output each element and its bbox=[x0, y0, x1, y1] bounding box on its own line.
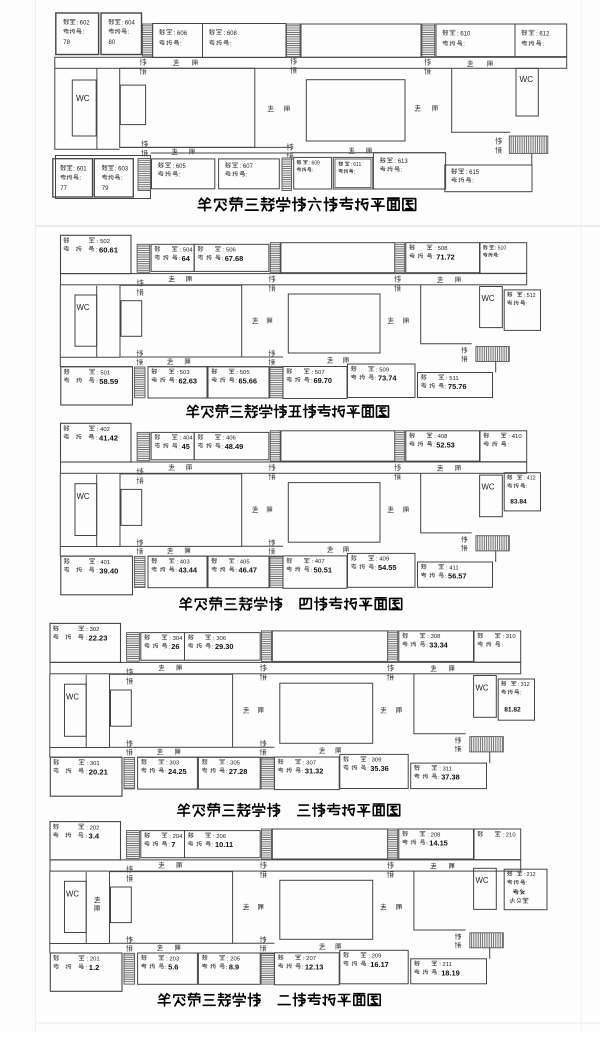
svg-text:: 503: : 503 bbox=[177, 370, 191, 376]
svg-text:: 504: : 504 bbox=[180, 248, 194, 254]
svg-text:79: 79 bbox=[102, 186, 109, 192]
svg-text:48.49: 48.49 bbox=[225, 442, 244, 451]
svg-text:WC: WC bbox=[520, 75, 534, 84]
svg-text:: 605: : 605 bbox=[173, 164, 187, 170]
svg-text:58.59: 58.59 bbox=[99, 377, 118, 386]
svg-text:: 203: : 203 bbox=[166, 956, 180, 962]
svg-text:: 502: : 502 bbox=[97, 239, 110, 245]
svg-text::: : bbox=[526, 484, 528, 490]
svg-text:: 402: : 402 bbox=[97, 427, 110, 433]
svg-text:73.74: 73.74 bbox=[378, 374, 397, 383]
svg-text:: 501: : 501 bbox=[97, 370, 110, 376]
svg-text:: 403: : 403 bbox=[177, 559, 191, 565]
svg-text:: 412: : 412 bbox=[524, 476, 536, 482]
svg-text:39.40: 39.40 bbox=[99, 566, 118, 575]
svg-text:29.30: 29.30 bbox=[215, 642, 234, 651]
svg-text:: 611: : 611 bbox=[351, 162, 362, 168]
svg-text:: 302: : 302 bbox=[86, 627, 99, 633]
svg-text::: : bbox=[520, 691, 522, 697]
svg-text:14.15: 14.15 bbox=[429, 839, 448, 848]
svg-text:: 507: : 507 bbox=[312, 370, 325, 376]
svg-text:: 210: : 210 bbox=[503, 833, 517, 839]
svg-text:46.47: 46.47 bbox=[239, 566, 258, 575]
svg-text:: 601: : 601 bbox=[73, 167, 87, 173]
svg-text:: 603: : 603 bbox=[115, 167, 129, 173]
svg-text:WC: WC bbox=[77, 492, 90, 501]
svg-text:: 303: : 303 bbox=[166, 761, 180, 767]
svg-text:: 609: : 609 bbox=[309, 160, 320, 166]
svg-text:: 301: : 301 bbox=[87, 761, 100, 767]
svg-text:50.51: 50.51 bbox=[314, 566, 333, 575]
svg-text:: 310: : 310 bbox=[503, 634, 517, 640]
svg-text:: 401: : 401 bbox=[97, 560, 110, 566]
svg-text:: 608: : 608 bbox=[224, 31, 238, 37]
svg-text:20.21: 20.21 bbox=[89, 767, 109, 776]
svg-text:83.84: 83.84 bbox=[510, 498, 527, 505]
svg-text:24.25: 24.25 bbox=[168, 767, 187, 776]
svg-text:: 304: : 304 bbox=[169, 636, 183, 642]
svg-text:: 306: : 306 bbox=[213, 636, 227, 642]
svg-text:: 606: : 606 bbox=[174, 31, 188, 37]
svg-text:71.72: 71.72 bbox=[436, 252, 455, 261]
svg-text:60.61: 60.61 bbox=[99, 245, 119, 254]
svg-text:: 602: : 602 bbox=[76, 21, 90, 27]
svg-text:WC: WC bbox=[476, 683, 489, 692]
svg-text:8.9: 8.9 bbox=[229, 963, 239, 972]
svg-text:WC: WC bbox=[482, 294, 495, 303]
svg-text:: 305: : 305 bbox=[227, 761, 241, 767]
svg-text:: 607: : 607 bbox=[240, 164, 254, 170]
svg-text:: 206: : 206 bbox=[213, 834, 227, 840]
svg-text:WC: WC bbox=[77, 303, 90, 312]
svg-text:64: 64 bbox=[182, 254, 191, 263]
svg-text:: 612: : 612 bbox=[536, 31, 550, 37]
svg-text:3.4: 3.4 bbox=[89, 832, 100, 841]
svg-text:WC: WC bbox=[66, 692, 79, 701]
svg-text:18.19: 18.19 bbox=[441, 968, 460, 977]
svg-text:78: 78 bbox=[63, 40, 70, 46]
svg-text:: 404: : 404 bbox=[180, 436, 194, 442]
svg-text:7: 7 bbox=[171, 840, 175, 849]
svg-text:10.11: 10.11 bbox=[215, 840, 233, 849]
svg-text:: 505: : 505 bbox=[237, 370, 251, 376]
svg-text:: 309: : 309 bbox=[368, 758, 381, 764]
svg-text:: 201: : 201 bbox=[87, 957, 100, 963]
svg-text::: : bbox=[498, 253, 499, 259]
svg-text:77: 77 bbox=[60, 186, 67, 192]
svg-text:80: 80 bbox=[109, 40, 116, 46]
svg-text:: 405: : 405 bbox=[237, 559, 251, 565]
svg-text:52.53: 52.53 bbox=[436, 440, 455, 449]
svg-text:1.2: 1.2 bbox=[89, 963, 100, 972]
svg-text:81.82: 81.82 bbox=[504, 707, 521, 714]
svg-text:: 307: : 307 bbox=[303, 760, 316, 766]
svg-text:: 411: : 411 bbox=[446, 565, 459, 571]
svg-text:: 408: : 408 bbox=[434, 434, 448, 440]
svg-text::: : bbox=[526, 881, 528, 887]
svg-text:: 508: : 508 bbox=[434, 246, 448, 252]
svg-text:: 202: : 202 bbox=[86, 825, 99, 831]
svg-text:27.28: 27.28 bbox=[229, 767, 248, 776]
svg-text:: 211: : 211 bbox=[439, 962, 452, 968]
svg-text:: 512: : 512 bbox=[524, 293, 536, 299]
svg-text:54.55: 54.55 bbox=[378, 563, 397, 572]
svg-text:: 207: : 207 bbox=[303, 956, 316, 962]
svg-text:: 509: : 509 bbox=[376, 367, 389, 373]
svg-text:62.63: 62.63 bbox=[179, 376, 198, 385]
svg-text:: 308: : 308 bbox=[427, 634, 441, 640]
svg-text:: 312: : 312 bbox=[518, 682, 530, 688]
svg-text:: 610: : 610 bbox=[457, 31, 471, 37]
svg-text:31.32: 31.32 bbox=[305, 767, 324, 776]
svg-text:: 204: : 204 bbox=[169, 834, 183, 840]
svg-text:45: 45 bbox=[182, 442, 190, 451]
svg-text:: 409: : 409 bbox=[376, 557, 389, 563]
svg-text:WC: WC bbox=[482, 483, 495, 492]
svg-text:: 205: : 205 bbox=[227, 956, 241, 962]
svg-text:: 311: : 311 bbox=[439, 766, 452, 772]
svg-text:: 410: : 410 bbox=[509, 434, 523, 440]
svg-text:WC: WC bbox=[476, 876, 489, 885]
svg-text:: 604: : 604 bbox=[122, 21, 136, 27]
svg-text:: 506: : 506 bbox=[223, 248, 237, 254]
svg-text:22.23: 22.23 bbox=[89, 634, 108, 643]
svg-text:: 212: : 212 bbox=[524, 872, 536, 878]
svg-text:67.68: 67.68 bbox=[225, 254, 244, 263]
svg-text:75.76: 75.76 bbox=[448, 382, 467, 391]
svg-text::: : bbox=[312, 168, 313, 174]
svg-text:WC: WC bbox=[76, 94, 90, 103]
svg-text:33.34: 33.34 bbox=[429, 641, 448, 650]
svg-text:37.38: 37.38 bbox=[441, 773, 460, 782]
svg-text:26: 26 bbox=[171, 642, 179, 651]
svg-text:: 511: : 511 bbox=[446, 376, 459, 382]
svg-text:: 615: : 615 bbox=[466, 170, 480, 176]
svg-text:: 613: : 613 bbox=[394, 159, 408, 165]
svg-text:16.17: 16.17 bbox=[370, 960, 389, 969]
svg-text::: : bbox=[526, 301, 528, 307]
svg-text:5.6: 5.6 bbox=[168, 963, 178, 972]
svg-text:: 407: : 407 bbox=[312, 559, 325, 565]
svg-text:: 510: : 510 bbox=[495, 246, 506, 252]
svg-text:: 208: : 208 bbox=[427, 832, 441, 838]
svg-text:: 209: : 209 bbox=[368, 954, 381, 960]
svg-text:43.44: 43.44 bbox=[179, 566, 198, 575]
svg-text:41.42: 41.42 bbox=[99, 433, 118, 442]
svg-text:12.13: 12.13 bbox=[305, 962, 324, 971]
svg-text:35.36: 35.36 bbox=[370, 764, 389, 773]
svg-text:: 406: : 406 bbox=[223, 436, 237, 442]
svg-text:WC: WC bbox=[66, 889, 79, 898]
svg-text:65.66: 65.66 bbox=[239, 376, 258, 385]
svg-text:69.70: 69.70 bbox=[314, 376, 333, 385]
svg-text:56.57: 56.57 bbox=[448, 572, 467, 581]
svg-text::: : bbox=[354, 169, 355, 175]
